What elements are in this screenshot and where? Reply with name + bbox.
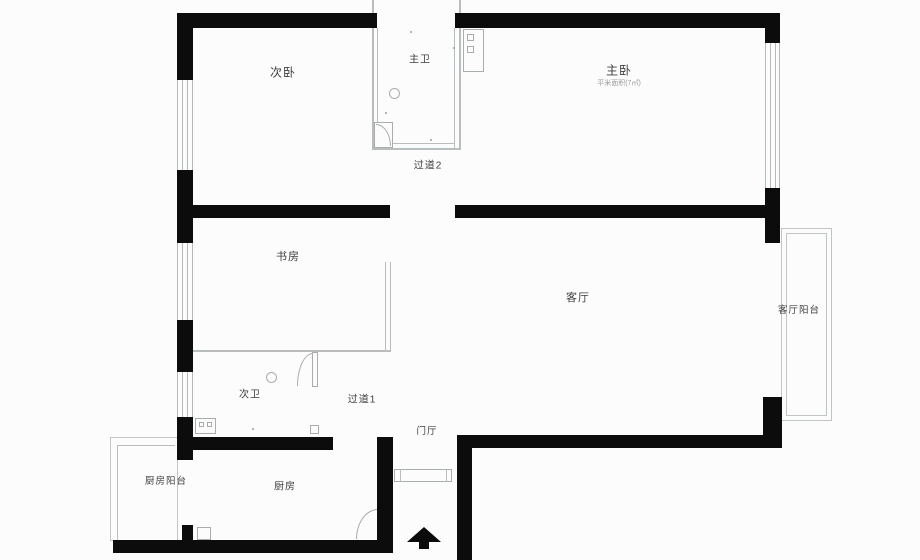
room-label-living-room: 客厅 xyxy=(566,289,590,305)
entry-door-threshold xyxy=(446,469,447,482)
hinge-dot-icon xyxy=(252,428,254,430)
wall xyxy=(765,13,780,43)
wall xyxy=(177,13,193,80)
vanity-basin-icon xyxy=(467,34,474,41)
wall xyxy=(765,188,780,243)
kitchen-balcony-outline xyxy=(110,437,178,541)
study-partition-line xyxy=(390,262,391,352)
wall xyxy=(457,435,472,560)
room-label-corridor-1: 过道1 xyxy=(348,391,377,406)
entry-arrow-icon xyxy=(406,527,442,549)
room-label-kitchen-balcony: 厨房阳台 xyxy=(145,473,187,487)
window xyxy=(177,80,193,170)
hinge-dot-icon xyxy=(453,47,455,49)
wall xyxy=(113,540,393,553)
window xyxy=(177,372,193,417)
secondary-bath-wall-line xyxy=(193,350,391,352)
room-label-kitchen: 厨房 xyxy=(274,478,296,493)
room-label-master-bedroom-note: 平米面积(7㎡) xyxy=(597,78,641,88)
toilet-detail-icon xyxy=(199,422,204,427)
entry-door-threshold xyxy=(400,469,401,482)
room-label-study: 书房 xyxy=(276,248,300,264)
floorplan: 次卧 主卫 主卧 平米面积(7㎡) 过道2 书房 客厅 客厅阳台 次卫 过道1 … xyxy=(0,0,920,560)
wall xyxy=(177,437,333,450)
masterbath-wall-line xyxy=(372,148,461,150)
wall xyxy=(455,205,765,218)
door-swing-arc-icon xyxy=(297,353,313,386)
room-label-master-bathroom: 主卫 xyxy=(409,51,431,66)
wall xyxy=(455,13,780,28)
living-balcony-outline xyxy=(786,233,827,416)
wall xyxy=(457,435,782,448)
room-label-entrance-hall: 门厅 xyxy=(416,423,437,437)
hinge-dot-icon xyxy=(430,139,432,141)
room-label-corridor-2: 过道2 xyxy=(414,157,443,172)
drain-circle-icon xyxy=(266,372,277,383)
wall xyxy=(193,205,390,218)
wall xyxy=(182,525,193,541)
kitchen-balcony-outline xyxy=(117,445,175,446)
wall xyxy=(177,13,377,28)
room-label-master-bedroom: 主卧 xyxy=(606,62,632,79)
hinge-dot-icon xyxy=(410,31,412,33)
vanity-basin-icon xyxy=(467,46,474,53)
room-label-secondary-bedroom: 次卧 xyxy=(270,64,296,81)
wall xyxy=(377,437,393,553)
kitchen-balcony-outline xyxy=(117,445,118,540)
entry-door-threshold xyxy=(394,469,452,482)
door-leaf-icon xyxy=(197,527,211,540)
window xyxy=(765,43,780,188)
wall xyxy=(177,320,193,372)
window xyxy=(177,243,193,320)
study-partition-line xyxy=(385,262,386,352)
drain-circle-icon xyxy=(389,88,400,99)
hinge-dot-icon xyxy=(385,112,387,114)
jamb-mark-icon xyxy=(310,425,319,434)
wall xyxy=(763,397,782,445)
room-label-secondary-bathroom: 次卫 xyxy=(239,386,261,401)
room-label-living-balcony: 客厅阳台 xyxy=(778,302,820,316)
door-swing-arc-icon xyxy=(356,509,378,539)
toilet-detail-icon xyxy=(207,422,212,427)
wall xyxy=(177,170,193,243)
